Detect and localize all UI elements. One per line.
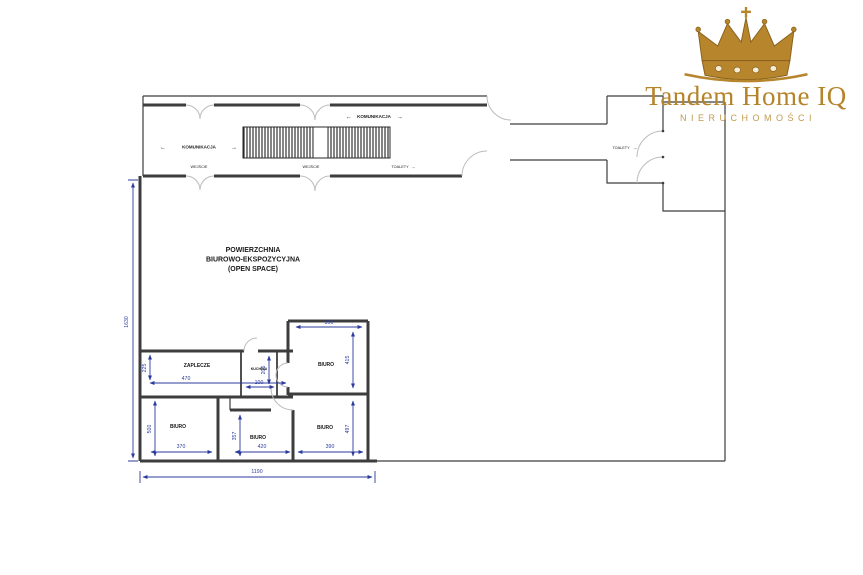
open-space-label-line3: (OPEN SPACE)	[228, 266, 278, 273]
toalety-arrow-2: →	[633, 146, 638, 152]
stairs-hatch	[243, 127, 390, 158]
toalety-arrow-1: →	[411, 165, 416, 171]
komunikacja-arrow-right-2: →	[397, 115, 403, 121]
dim-biuro-tr-width: 390	[325, 320, 334, 326]
komunikacja-label-1: KOMUNIKACJA	[182, 145, 217, 150]
dim-biuro-tr-height: 415	[345, 356, 351, 365]
brand-name: Tandem Home IQ	[628, 83, 863, 110]
brand-logo: Tandem Home IQ NIERUCHOMOŚCI	[628, 6, 863, 123]
door-hinge-dots	[662, 130, 665, 185]
dim-total-height: 1630	[124, 316, 130, 328]
dim-biuro-bl-width: 370	[177, 444, 186, 450]
corridor-labels: ← KOMUNIKACJA → ← KOMUNIKACJA → WEJŚCIE …	[160, 114, 638, 171]
dim-kuchnia-width: 100	[255, 380, 264, 386]
dim-total-width: 1190	[251, 469, 262, 475]
biuro-top-right-label: BIURO	[318, 362, 334, 368]
toalety-label-1: TOALETY	[391, 165, 409, 169]
open-space-label-line2: BIUROWO-EKSPOZYCYJNA	[206, 257, 300, 264]
biuro-bottom-right-label: BIURO	[317, 425, 333, 431]
dim-biuro-bm-width: 420	[258, 444, 267, 450]
dim-zaplecze-height: 225	[142, 364, 148, 373]
dim-biuro-br-width: 390	[326, 444, 335, 450]
biuro-bottom-middle-label: BIURO	[250, 435, 266, 441]
floor-plan-page: 1630 1190 470 225 100 205 390 415 370 50…	[0, 0, 863, 575]
brand-subtitle: NIERUCHOMOŚCI	[628, 114, 863, 123]
dim-biuro-bm-height: 357	[232, 432, 238, 441]
wejscie-label-2: WEJŚCIE	[303, 164, 320, 169]
dim-biuro-bl-height: 500	[147, 425, 153, 434]
zaplecze-label: ZAPLECZE	[184, 363, 211, 369]
dim-biuro-br-height: 497	[345, 425, 351, 434]
walls-medium	[241, 351, 277, 397]
komunikacja-arrow-left-1: ←	[160, 145, 166, 151]
toalety-label-2: TOALETY	[612, 146, 630, 150]
crown-icon	[661, 6, 831, 86]
biuro-bottom-left-label: BIURO	[170, 424, 186, 430]
komunikacja-label-2: KOMUNIKACJA	[357, 114, 392, 119]
open-space-label-line1: POWIERZCHNIA	[226, 247, 281, 254]
room-labels: POWIERZCHNIA BIUROWO-EKSPOZYCYJNA (OPEN …	[170, 247, 334, 441]
komunikacja-arrow-left-2: ←	[346, 115, 352, 121]
kuchnia-label: KUCHNIA	[251, 367, 268, 371]
komunikacja-arrow-right-1: →	[231, 145, 237, 151]
dim-zaplecze-width: 470	[182, 376, 191, 382]
wejscie-label-1: WEJŚCIE	[191, 164, 208, 169]
